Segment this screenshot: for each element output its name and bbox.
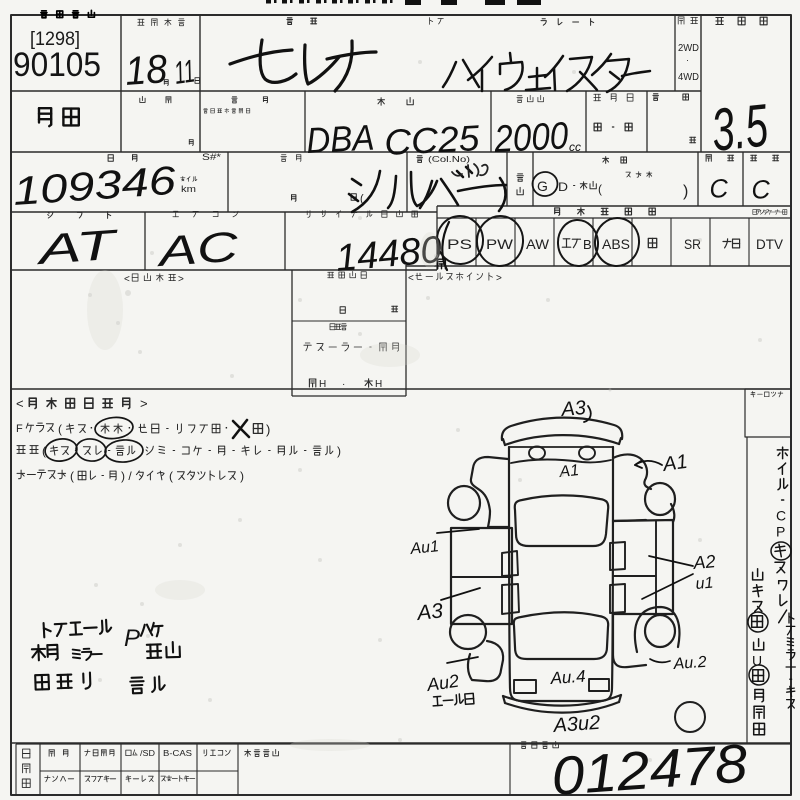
svg-text:C: C [776,508,786,524]
svg-text:<: < [408,273,414,284]
svg-text:F: F [16,423,23,435]
svg-text:A3: A3 [560,397,587,421]
svg-text:u1: u1 [695,574,714,592]
svg-text:): ) [240,469,244,483]
svg-text:DTV: DTV [756,236,784,252]
svg-text:11: 11 [172,52,197,90]
svg-text:Au2: Au2 [425,671,460,695]
svg-text:CC25: CC25 [383,117,481,163]
svg-text:B-CAS: B-CAS [163,748,192,758]
svg-text:km: km [181,184,196,194]
svg-text:·: · [686,55,689,65]
svg-text:(: ( [58,422,62,436]
svg-text:<: < [16,396,24,411]
svg-text:(: ( [70,469,74,483]
svg-text:DBA: DBA [305,116,375,161]
svg-text:Au.2: Au.2 [672,654,707,673]
svg-text:P: P [124,625,140,652]
svg-text:AC: AC [153,223,240,276]
svg-text:): ) [266,422,270,437]
svg-text:Au.4: Au.4 [549,667,586,688]
svg-text:(: ( [598,182,602,196]
svg-text:AT: AT [33,220,122,273]
svg-text:<: < [124,274,130,285]
svg-text:cc: cc [569,140,581,154]
svg-text:C: C [750,174,771,205]
svg-text:): ) [337,444,341,458]
svg-text:S#*: S#* [202,152,222,162]
svg-text:(: ( [169,469,173,483]
svg-text:B: B [583,237,592,252]
svg-text:2WD: 2WD [678,43,699,54]
svg-text:2000: 2000 [492,115,569,161]
svg-text:>: > [140,396,148,411]
svg-text:18: 18 [124,47,170,94]
svg-text:109346: 109346 [12,159,179,214]
svg-text:>: > [496,273,502,284]
svg-text:>: > [178,274,184,285]
svg-text:D: D [558,180,568,194]
svg-text:AW: AW [526,236,550,252]
svg-text:A2: A2 [692,551,717,573]
svg-text:H: H [319,379,326,390]
svg-text:ABS: ABS [602,236,630,252]
svg-text:) /: ) / [121,469,132,483]
svg-text:Au1: Au1 [409,538,440,558]
svg-text:A3: A3 [414,599,444,625]
svg-text:G: G [537,178,548,194]
svg-text:PS: PS [447,236,472,252]
svg-text:90105: 90105 [13,46,101,84]
svg-text:A3u2: A3u2 [552,712,601,737]
svg-text:PW: PW [486,236,514,252]
svg-text:·: · [225,423,228,434]
svg-text:4WD: 4WD [678,72,699,83]
svg-text:A1: A1 [661,451,689,476]
svg-text:/SD: /SD [140,749,155,758]
svg-text:H: H [375,379,382,390]
svg-text:3.5: 3.5 [708,91,771,164]
svg-text:A1: A1 [558,462,580,481]
svg-text:C: C [708,173,729,204]
svg-text:·: · [90,423,93,434]
svg-text:P: P [776,523,785,539]
svg-text:): ) [683,183,688,200]
svg-text:SR: SR [684,236,701,252]
svg-text:·: · [342,379,345,390]
